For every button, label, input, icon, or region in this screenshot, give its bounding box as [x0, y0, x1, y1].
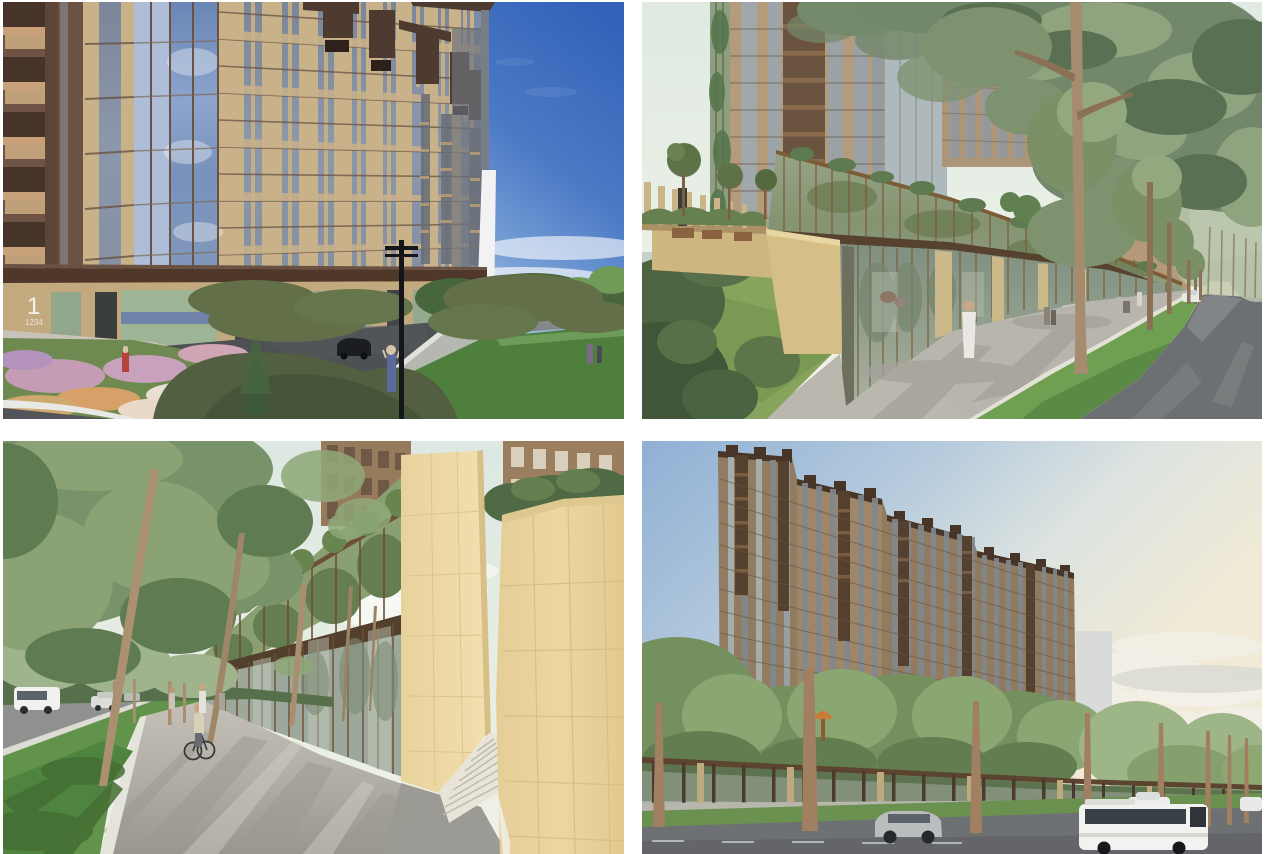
svg-text:1: 1: [27, 293, 40, 320]
svg-text:1234: 1234: [25, 318, 43, 327]
